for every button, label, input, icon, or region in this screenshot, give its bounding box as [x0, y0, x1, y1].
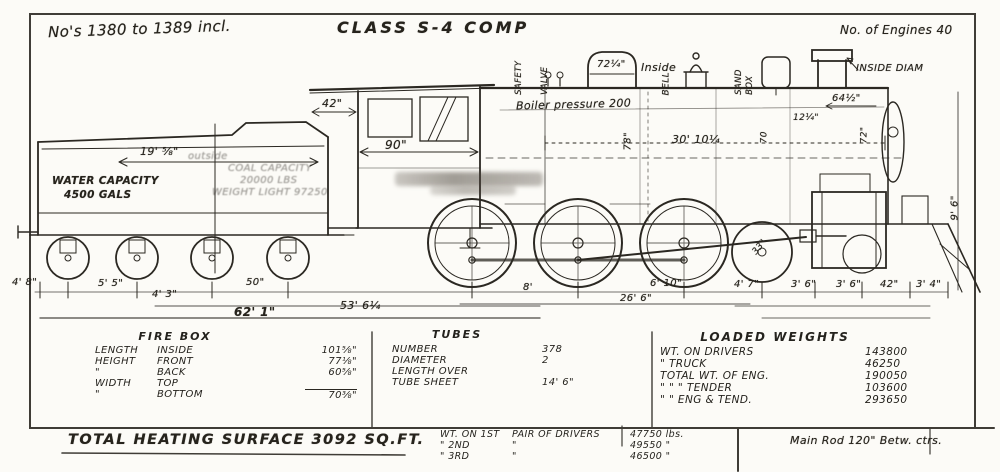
tubes-table-title: TUBES: [392, 328, 522, 341]
table-row: WT. ON 1ST PAIR OF DRIVERS 47750 lbs.: [440, 429, 732, 440]
tender-length-dim: 19' ⅝": [140, 146, 179, 158]
dim-row2-0: 26' 6": [620, 294, 652, 305]
dim-row2-1: 53' 6¼: [340, 300, 381, 312]
overall-height-dim: 9' 6": [951, 195, 962, 220]
dim-row1-8: 3' 6": [836, 280, 861, 291]
table-row: HEIGHT FRONT 77⅛": [95, 356, 357, 367]
note-engine-numbers: No's 1380 to 1389 incl.: [48, 19, 231, 41]
table-row: " 2ND " 49550 ": [440, 440, 732, 451]
drawing-title: CLASS S-4 COMP: [337, 20, 529, 37]
dim-row1-4: 8': [523, 283, 533, 294]
scanned-locomotive-diagram: No's 1380 to 1389 incl. CLASS S-4 COMP N…: [0, 0, 1000, 472]
rods-and-cylinder: [472, 174, 886, 268]
water-capacity-value: 4500 GALS: [64, 190, 131, 201]
note-engine-count: No. of Engines 40: [840, 24, 953, 37]
illegible-handwriting-1: [395, 172, 543, 186]
table-row: " BOTTOM 70⅜": [95, 389, 357, 401]
weight-light-note: WEIGHT LIGHT 97250: [212, 188, 328, 199]
dim-12-quarter: 12¼": [793, 114, 819, 123]
cab-overhang-dim: 42": [322, 98, 342, 110]
coal-capacity-value: 20000 LBS: [240, 176, 297, 187]
dimension-lines: [35, 92, 958, 318]
dim-row1-5: 6' 10": [650, 279, 682, 290]
sand-box: [762, 57, 790, 95]
bell-shape: [684, 53, 708, 88]
sand-box-label-1: SAND: [735, 69, 744, 95]
dim-row1-6: 4' 7": [734, 280, 759, 291]
dim-row2-2: 62' 1": [234, 306, 276, 319]
table-row: DIAMETER 2: [392, 355, 637, 366]
truck-wheel-diam: 33": [751, 238, 769, 257]
table-row: LENGTH OVER: [392, 366, 637, 377]
dim-row1-10: 3' 4": [916, 280, 941, 291]
driver-wheels: [428, 199, 728, 287]
table-row: TOTAL WT. OF ENG. 190050: [660, 370, 960, 382]
boiler-length-dim: 30' 10¼: [672, 134, 720, 146]
bell-label: BELL: [663, 72, 672, 96]
cab-width-dim: 90": [385, 139, 407, 152]
dim-row1-3: 50": [246, 278, 265, 289]
table-row: TUBE SHEET 14' 6": [392, 377, 637, 388]
boiler-pressure-note: Boiler pressure 200: [516, 97, 632, 112]
water-capacity-label: WATER CAPACITY: [52, 176, 159, 187]
tubes-table: TUBES NUMBER 378 DIAMETER 2 LENGTH OVER …: [392, 328, 637, 388]
firebox-table-title: FIRE BOX: [95, 330, 255, 343]
table-row: WT. ON DRIVERS 143800: [660, 346, 960, 358]
sand-box-label-2: BOX: [746, 76, 755, 95]
pilot-cowcatcher: [888, 196, 980, 292]
firebox-table: FIRE BOX LENGTH INSIDE 101⅝" HEIGHT FRON…: [95, 330, 357, 401]
table-row: " BACK 60⅝": [95, 367, 357, 378]
driver-pair-weights-table: WT. ON 1ST PAIR OF DRIVERS 47750 lbs. " …: [440, 429, 732, 462]
table-row: LENGTH INSIDE 101⅝": [95, 345, 357, 356]
table-row: " " ENG & TEND. 293650: [660, 394, 960, 406]
total-heating-surface: TOTAL HEATING SURFACE 3092 SQ.FT.: [68, 433, 425, 448]
dim-64-half: 64½": [832, 94, 861, 105]
dim-row1-9: 42": [880, 280, 899, 291]
table-row: " TRUCK 46250: [660, 358, 960, 370]
dim-row1-1: 5' 5": [98, 279, 123, 290]
loaded-weights-table: LOADED WEIGHTS WT. ON DRIVERS 143800 " T…: [660, 330, 960, 406]
dim-row1-2: 4' 3": [152, 290, 177, 301]
coal-capacity-label: COAL CAPACITY: [228, 164, 312, 175]
table-row: NUMBER 378: [392, 344, 637, 355]
table-row: WIDTH TOP: [95, 378, 357, 389]
safety-valve-label-1: SAFETY: [515, 61, 524, 95]
tender-length-suffix: outside: [188, 152, 228, 163]
dim-70: 70: [761, 131, 770, 143]
smoke-stack: [812, 50, 858, 88]
dome-diameter: 72¼": [597, 60, 626, 71]
weights-table-title: LOADED WEIGHTS: [660, 330, 890, 344]
boiler-diameter-dim: 78": [624, 132, 635, 151]
tender-wheels: [47, 237, 309, 279]
table-row: " " " TENDER 103600: [660, 382, 960, 394]
dim-row1-7: 3' 6": [791, 280, 816, 291]
dim-row1-0: 4' 8": [12, 278, 37, 289]
drawbar: [328, 228, 358, 235]
main-rod-note: Main Rod 120" Betw. ctrs.: [790, 435, 942, 447]
illegible-handwriting-2: [430, 186, 516, 195]
safety-valve-label-2: VALVE: [541, 67, 550, 95]
dim-72: 72": [861, 127, 870, 144]
table-row: " 3RD " 46500 ": [440, 451, 732, 462]
stack-inside-diam-label: INSIDE DIAM: [856, 64, 923, 75]
